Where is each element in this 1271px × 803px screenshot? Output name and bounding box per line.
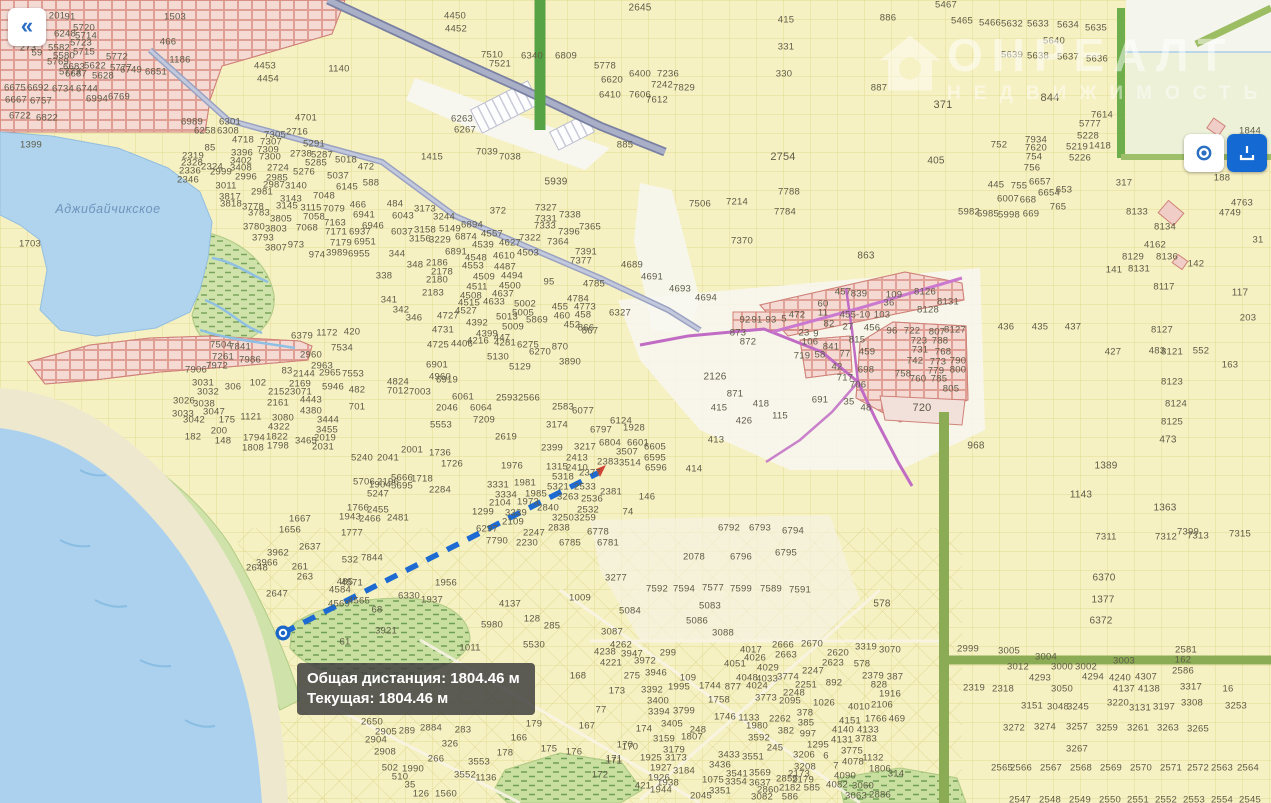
locate-button[interactable] [1184,134,1224,172]
measure-icon [1236,142,1258,164]
distance-tooltip: Общая дистанция: 1804.46 м Текущая: 1804… [297,663,535,715]
total-distance-text: Общая дистанция: 1804.46 м [307,669,525,689]
measure-tool-button[interactable] [1227,134,1267,172]
collapse-panel-button[interactable]: « [8,8,46,46]
map-canvas[interactable] [0,0,1271,803]
target-icon [1194,143,1214,163]
lake-label: Аджибайчикское [55,202,160,216]
map-app: 2019157206248571457235582571555802735915… [0,0,1271,803]
chevron-double-left-icon: « [21,15,33,37]
current-distance-text: Текущая: 1804.46 м [307,689,525,709]
